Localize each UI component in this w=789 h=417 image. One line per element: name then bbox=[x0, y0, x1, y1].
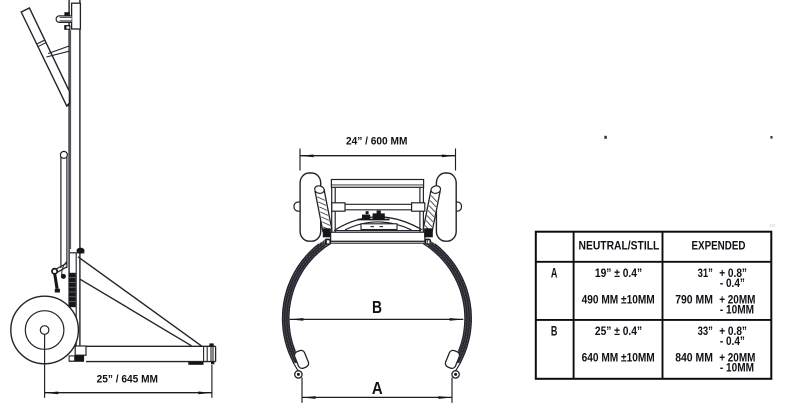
svg-text:790 MM: 790 MM bbox=[675, 294, 713, 306]
svg-text:B: B bbox=[551, 324, 558, 339]
svg-text:840 MM: 840 MM bbox=[675, 353, 713, 365]
svg-text:B: B bbox=[372, 297, 382, 317]
svg-text:- 10MM: - 10MM bbox=[720, 304, 754, 316]
svg-text:- 0.4”: - 0.4” bbox=[720, 336, 745, 348]
svg-text:A: A bbox=[551, 266, 558, 281]
svg-text:EXPENDED: EXPENDED bbox=[692, 238, 746, 252]
svg-text:- 10MM: - 10MM bbox=[720, 363, 754, 375]
svg-text:31”: 31” bbox=[698, 268, 713, 280]
svg-text:A: A bbox=[372, 378, 383, 398]
svg-text:- 0.4”: - 0.4” bbox=[720, 278, 745, 290]
svg-text:25” ± 0.4”: 25” ± 0.4” bbox=[595, 326, 642, 338]
svg-text:33”: 33” bbox=[698, 326, 713, 338]
svg-text:490 MM ±10MM: 490 MM ±10MM bbox=[582, 295, 655, 307]
svg-text:25” / 645 MM: 25” / 645 MM bbox=[97, 374, 159, 386]
svg-text:NEUTRAL/STILL: NEUTRAL/STILL bbox=[579, 238, 660, 252]
svg-text:640 MM ±10MM: 640 MM ±10MM bbox=[582, 353, 655, 365]
svg-text:19” ± 0.4”: 19” ± 0.4” bbox=[595, 268, 642, 280]
svg-text:24” / 600 MM: 24” / 600 MM bbox=[346, 135, 408, 147]
